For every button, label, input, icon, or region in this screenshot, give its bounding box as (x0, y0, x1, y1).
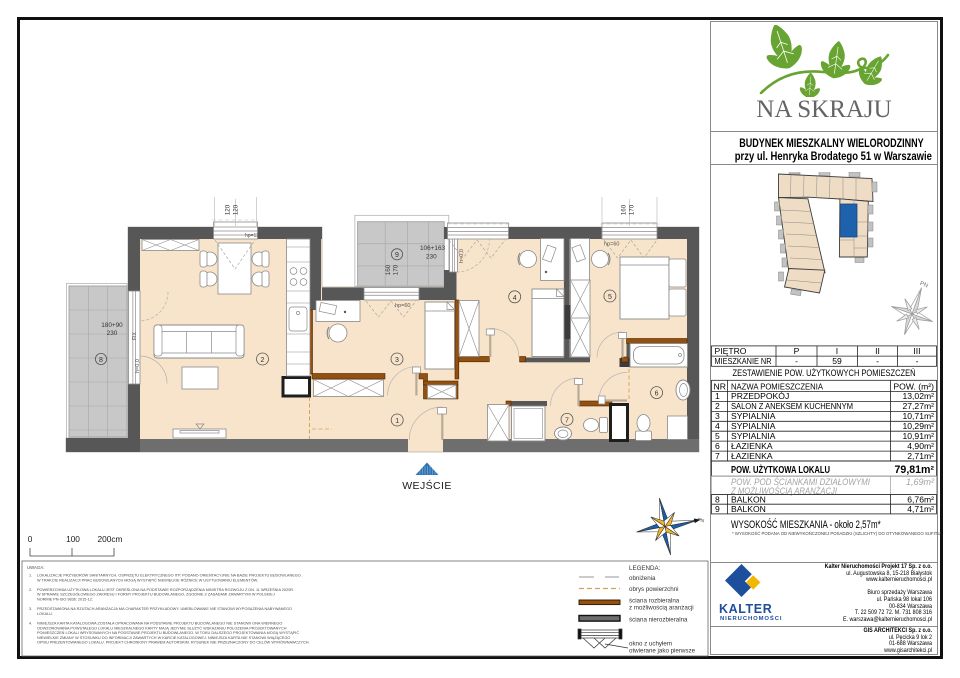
svg-text:h=0,0: h=0,0 (135, 359, 141, 373)
svg-text:120: 120 (233, 204, 240, 215)
svg-text:W SPRAWIE SZCZEGÓŁOWEGO ZAKRES: W SPRAWIE SZCZEGÓŁOWEGO ZAKRESU I FORMY … (37, 592, 275, 597)
svg-text:FIX: FIX (132, 332, 138, 340)
svg-text:POMIESZCZEŃ LOKALI WRYSOWANYCH: POMIESZCZEŃ LOKALI WRYSOWANYCH NA PODSTA… (37, 630, 299, 635)
svg-text:hp=130: hp=130 (245, 233, 262, 239)
svg-text:180+90: 180+90 (101, 322, 123, 329)
svg-text:120: 120 (225, 204, 232, 215)
svg-text:MIESZKANIE NR: MIESZKANIE NR (715, 356, 772, 366)
svg-text:160: 160 (385, 264, 392, 275)
svg-text:3: 3 (715, 411, 720, 421)
svg-text:WEJŚCIE: WEJŚCIE (402, 479, 451, 492)
svg-text:obniżenia: obniżenia (629, 575, 656, 582)
svg-text:7: 7 (715, 451, 720, 461)
svg-text:hp=60: hp=60 (604, 242, 619, 248)
svg-text:8: 8 (715, 494, 720, 504)
svg-text:ściana rozbieralna: ściana rozbieralna (629, 598, 680, 605)
svg-text:230: 230 (107, 330, 118, 337)
svg-text:hp=60: hp=60 (395, 303, 410, 309)
svg-text:8: 8 (99, 357, 103, 364)
svg-text:2,71m²: 2,71m² (907, 451, 934, 461)
svg-text:10,29m²: 10,29m² (902, 421, 934, 431)
svg-text:NORMIE PN-ISO 9836: 2015-12.: NORMIE PN-ISO 9836: 2015-12. (37, 598, 93, 602)
svg-text:59: 59 (832, 356, 842, 366)
svg-text:LOKALU.: LOKALU. (37, 612, 53, 616)
svg-text:P: P (794, 346, 800, 356)
svg-text:ściana nierozbieralna: ściana nierozbieralna (629, 617, 688, 624)
svg-text:PRZEDSTAWIONA NA RZUTACH ARANŻ: PRZEDSTAWIONA NA RZUTACH ARANŻACJA MA CH… (37, 606, 292, 611)
svg-text:4: 4 (715, 421, 720, 431)
svg-text:9: 9 (715, 504, 720, 514)
svg-text:ZESTAWIENIE POW. UŻYTKOWYCH PO: ZESTAWIENIE POW. UŻYTKOWYCH POMIESZCZEŃ (733, 368, 916, 379)
svg-text:BALKON: BALKON (731, 494, 766, 504)
svg-text:0: 0 (28, 534, 33, 544)
svg-text:100: 100 (66, 534, 80, 544)
svg-text:160: 160 (621, 204, 628, 215)
svg-text:9: 9 (395, 252, 399, 259)
svg-text:POWIERZCHNIA UŻYTKOWA LOKALU J: POWIERZCHNIA UŻYTKOWA LOKALU JEST OKREŚL… (37, 587, 294, 592)
svg-text:LOKALIZACJE PRZYBORÓW SANITARN: LOKALIZACJE PRZYBORÓW SANITARNYCH, OSPRZ… (37, 573, 302, 578)
svg-text:SYPIALNIA: SYPIALNIA (731, 431, 776, 441)
svg-text:III: III (913, 346, 920, 356)
svg-text:1,69m²: 1,69m² (906, 477, 935, 487)
svg-text:ŁAZIENKA: ŁAZIENKA (731, 441, 773, 451)
svg-text:OPISU PREZENTOWANEGO LOKALU. P: OPISU PREZENTOWANEGO LOKALU. PROJEKT CHR… (37, 640, 310, 645)
svg-text:NINIEJSZA KARTA KATALOGOWA ZOS: NINIEJSZA KARTA KATALOGOWA ZOSTAŁA OPRAC… (37, 622, 282, 626)
svg-text:NR: NR (714, 381, 726, 391)
svg-text:z możliwością aranżacji: z możliwością aranżacji (629, 605, 694, 612)
svg-text:PIĘTRO: PIĘTRO (715, 346, 747, 356)
svg-text:1: 1 (715, 391, 720, 401)
svg-text:SALON Z ANEKSEM KUCHENNYM: SALON Z ANEKSEM KUCHENNYM (731, 401, 853, 411)
svg-text:79,81m²: 79,81m² (895, 464, 935, 476)
svg-text:NIEWIELKIE ZMIANY W STOSUNKU D: NIEWIELKIE ZMIANY W STOSUNKU DO INFORMAC… (37, 635, 290, 640)
svg-text:-: - (795, 356, 798, 366)
svg-text:6: 6 (655, 391, 659, 398)
svg-text:NAZWA POMIESZCZENIA: NAZWA POMIESZCZENIA (731, 381, 823, 391)
svg-text:-: - (916, 356, 919, 366)
svg-text:SYPIALNIA: SYPIALNIA (731, 421, 776, 431)
svg-text:SYPIALNIA: SYPIALNIA (731, 411, 776, 421)
svg-text:200cm: 200cm (98, 534, 123, 544)
svg-text:4,90m²: 4,90m² (907, 441, 934, 451)
svg-text:170: 170 (393, 264, 400, 275)
svg-text:BALKON: BALKON (731, 504, 766, 514)
svg-text:ODWZOROWANIA POWSTAŁEGO LOKALU: ODWZOROWANIA POWSTAŁEGO LOKALU MIESZKALN… (37, 625, 287, 630)
svg-text:230: 230 (426, 254, 437, 261)
svg-text:ŁAZIENKA: ŁAZIENKA (731, 451, 773, 461)
svg-text:170: 170 (629, 204, 636, 215)
svg-text:4: 4 (513, 295, 517, 302)
svg-text:POW. (m²): POW. (m²) (893, 381, 934, 391)
svg-text:2: 2 (715, 401, 720, 411)
svg-text:3: 3 (395, 357, 399, 364)
svg-text:PN: PN (919, 281, 929, 289)
svg-text:4.: 4. (29, 622, 32, 626)
svg-text:6,76m²: 6,76m² (907, 494, 934, 504)
svg-text:7: 7 (565, 417, 569, 424)
svg-text:2: 2 (261, 357, 265, 364)
svg-text:4,71m²: 4,71m² (907, 504, 934, 514)
svg-text:6: 6 (715, 441, 720, 451)
svg-text:5: 5 (608, 294, 612, 301)
svg-text:1.: 1. (29, 574, 32, 578)
svg-text:obrys powierzchni: obrys powierzchni (629, 586, 679, 593)
svg-text:h=0,0: h=0,0 (459, 249, 465, 263)
svg-text:W TRAKCIE REALIZACJI PRAC BUDO: W TRAKCIE REALIZACJI PRAC BUDOWLANYCH MO… (37, 577, 258, 582)
svg-text:13,02m²: 13,02m² (902, 391, 934, 401)
svg-text:1: 1 (395, 418, 399, 425)
svg-text:I: I (836, 346, 838, 356)
svg-text:27,27m²: 27,27m² (902, 401, 934, 411)
svg-text:UWAGA:: UWAGA: (27, 565, 44, 570)
svg-text:otwierane jako pierwsze: otwierane jako pierwsze (629, 648, 696, 655)
svg-text:okno z uchyłem: okno z uchyłem (629, 641, 672, 648)
svg-text:10,71m²: 10,71m² (902, 411, 934, 421)
svg-text:10,91m²: 10,91m² (902, 431, 934, 441)
svg-text:PRZEDPOKÓJ: PRZEDPOKÓJ (731, 391, 789, 401)
svg-text:POW. UŻYTKOWA LOKALU: POW. UŻYTKOWA LOKALU (731, 465, 830, 476)
svg-text:-: - (876, 356, 879, 366)
svg-text:LEGENDA:: LEGENDA: (629, 565, 661, 572)
svg-text:II: II (875, 346, 880, 356)
svg-text:5: 5 (715, 431, 720, 441)
svg-text:PN: PN (697, 517, 705, 524)
svg-text:106+163: 106+163 (420, 245, 446, 252)
svg-text:2.: 2. (29, 588, 32, 592)
svg-text:3.: 3. (29, 607, 32, 611)
